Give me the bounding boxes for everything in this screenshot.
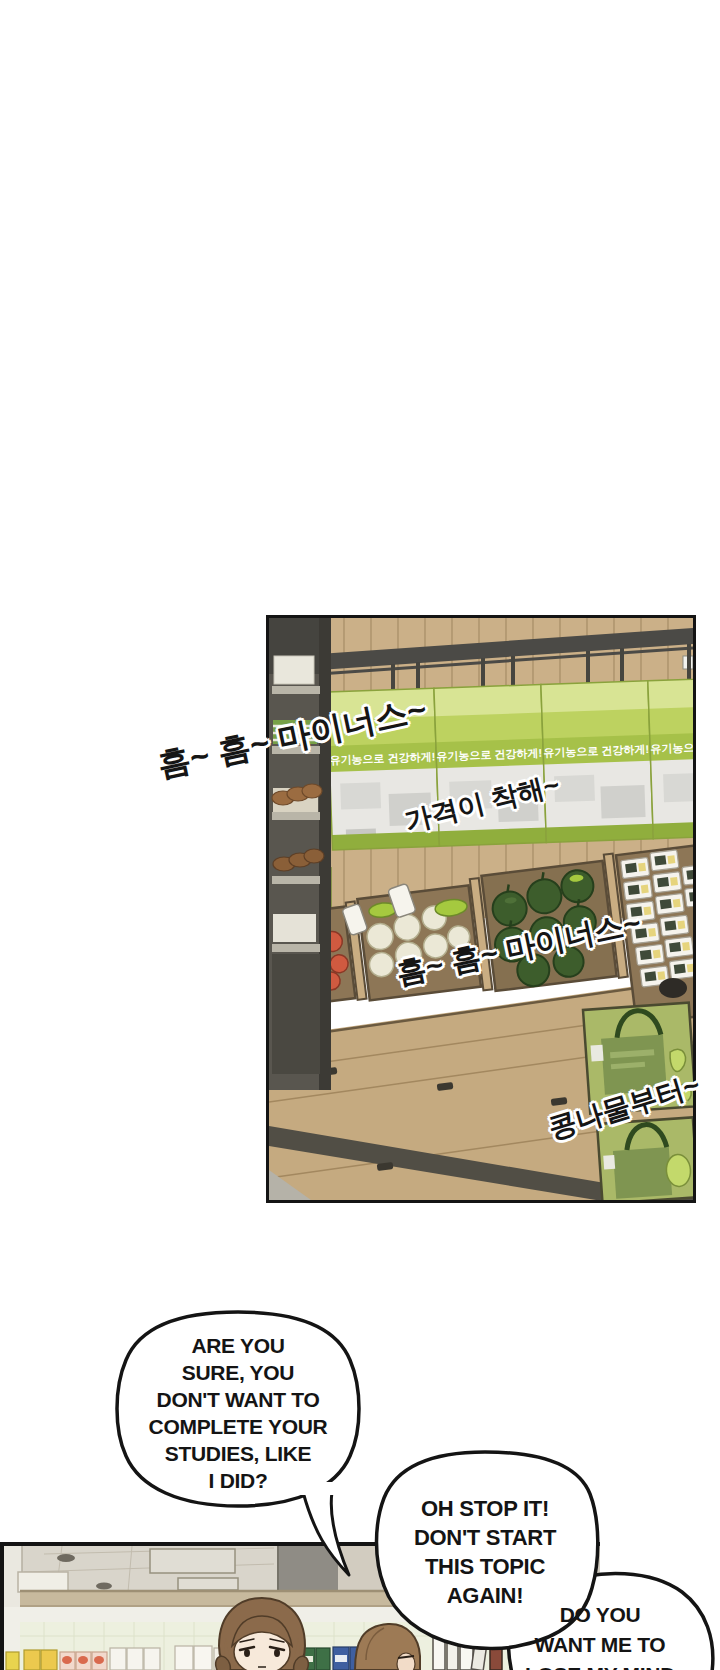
bubble3-line: DO YOU (500, 1600, 700, 1630)
bubble2-line: DON'T START (385, 1523, 585, 1552)
bubble1-line: I DID? (128, 1467, 348, 1494)
bubble2-line: OH STOP IT! (385, 1494, 585, 1523)
left-shelf-unit (269, 618, 331, 1090)
bubble3-line: LOSE MY MIND (500, 1660, 700, 1670)
bubble1-line: SURE, YOU (128, 1359, 348, 1386)
comic-page: 유기농으로 건강하게! 유기농으로 건강하게! (0, 0, 720, 1670)
bubble2-text: OH STOP IT! DON'T START THIS TOPIC AGAIN… (385, 1494, 585, 1610)
bubble3-text: DO YOU WANT ME TO LOSE MY MIND (500, 1600, 700, 1670)
bubble1-line: ARE YOU (128, 1332, 348, 1359)
shelf-books (433, 1627, 502, 1670)
bubble1-line: DON'T WANT TO (128, 1386, 348, 1413)
bubble3-line: WANT ME TO (500, 1630, 700, 1660)
bubble2-line: THIS TOPIC (385, 1552, 585, 1581)
pillar (278, 1546, 338, 1592)
bubble1-line: STUDIES, LIKE (128, 1440, 348, 1467)
bubble1-line: COMPLETE YOUR (128, 1413, 348, 1440)
bubble1-text: ARE YOU SURE, YOU DON'T WANT TO COMPLETE… (128, 1332, 348, 1494)
